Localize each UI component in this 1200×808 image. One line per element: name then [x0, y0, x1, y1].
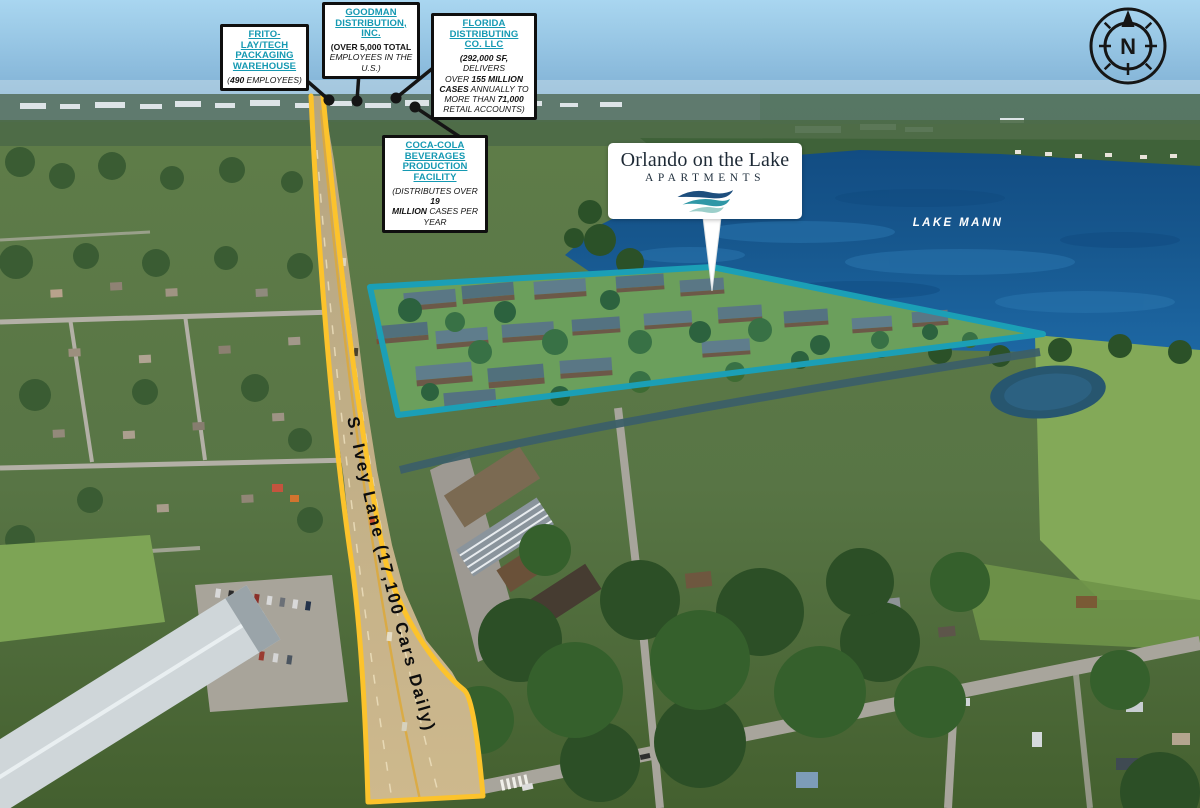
callout-body: (DISTRIBUTES OVER 19 MILLION CASES PER Y…	[389, 186, 481, 227]
horizon-industrial-band	[0, 94, 1200, 146]
callout-body: (OVER 5,000 TOTAL EMPLOYEES IN THE U.S.)	[329, 42, 413, 73]
callout-frito-lay-tech-packaging-warehouse: FRITO-LAY/TECH PACKAGING WAREHOUSE (490 …	[220, 24, 309, 91]
callout-title: FLORIDA DISTRIBUTING CO. LLC	[438, 19, 530, 51]
sign-title: Orlando on the Lake	[608, 150, 802, 170]
callout-title: FRITO-LAY/TECH PACKAGING WAREHOUSE	[227, 30, 302, 73]
aerial-photo: S. Ivey Lane (17,100 Cars Daily) LAKE MA…	[0, 0, 1200, 808]
svg-text:N: N	[1120, 34, 1136, 59]
lake-waves-logo-icon	[608, 187, 802, 222]
lake-label: LAKE MANN	[913, 217, 1004, 229]
callout-body: (490 EMPLOYEES)	[227, 75, 302, 85]
compass-rose-icon: N	[1091, 9, 1165, 83]
aerial-map: S. Ivey Lane (17,100 Cars Daily) LAKE MA…	[0, 0, 1200, 808]
callout-title: GOODMAN DISTRIBUTION, INC.	[329, 8, 413, 40]
callout-coca-cola-beverages-production-facility: COCA-COLA BEVERAGES PRODUCTION FACILITY …	[382, 135, 488, 233]
sky	[0, 0, 1200, 100]
callout-florida-distributing-co-llc: FLORIDA DISTRIBUTING CO. LLC (292,000 SF…	[431, 13, 537, 120]
property-sign: Orlando on the Lake APARTMENTS	[608, 143, 802, 219]
callout-title: COCA-COLA BEVERAGES PRODUCTION FACILITY	[389, 141, 481, 184]
callout-goodman-distribution-inc: GOODMAN DISTRIBUTION, INC. (OVER 5,000 T…	[322, 2, 420, 79]
callout-body: (292,000 SF, DELIVERS OVER 155 MILLION C…	[438, 53, 530, 114]
sign-subtitle: APARTMENTS	[608, 173, 802, 185]
